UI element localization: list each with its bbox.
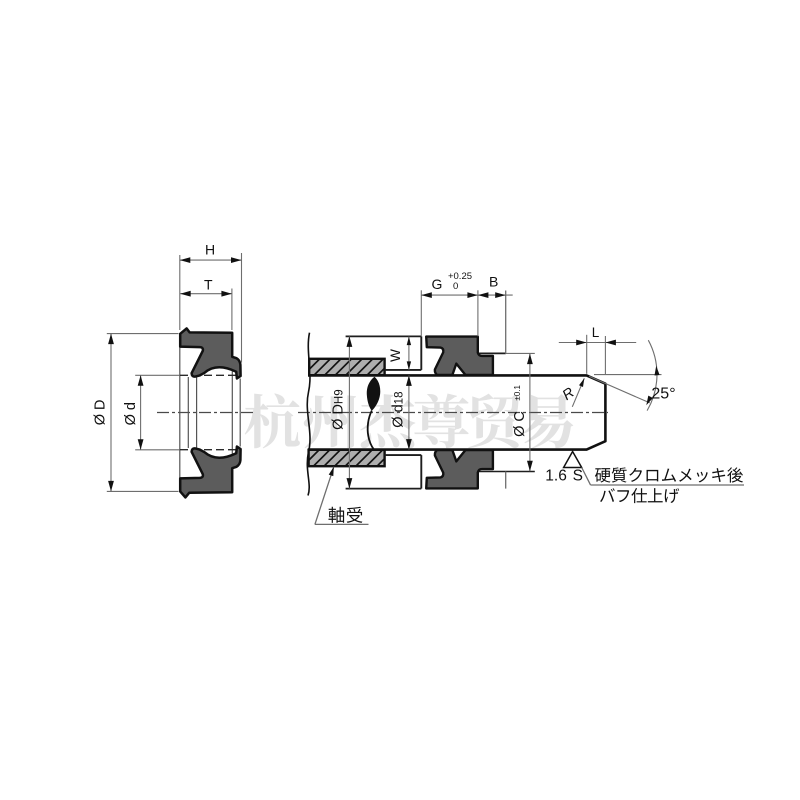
- svg-text:+0.25: +0.25: [448, 271, 472, 282]
- svg-text:Ø d18: Ø d18: [391, 392, 407, 428]
- svg-text:T: T: [204, 277, 213, 293]
- svg-text:Ø C: Ø C: [512, 411, 528, 437]
- svg-text:Ø D: Ø D: [93, 400, 109, 426]
- svg-text:0: 0: [453, 281, 458, 292]
- svg-text:±0.1: ±0.1: [513, 384, 522, 400]
- svg-text:Ø DH9: Ø DH9: [331, 389, 347, 429]
- svg-text:1.6: 1.6: [545, 467, 567, 484]
- svg-text:B: B: [489, 273, 498, 289]
- svg-text:Ø d: Ø d: [123, 402, 139, 425]
- svg-text:W: W: [388, 349, 403, 362]
- svg-text:25°: 25°: [651, 386, 675, 403]
- svg-text:S: S: [573, 467, 583, 484]
- svg-text:G: G: [431, 276, 442, 292]
- svg-text:H: H: [205, 241, 215, 257]
- svg-text:L: L: [592, 325, 600, 340]
